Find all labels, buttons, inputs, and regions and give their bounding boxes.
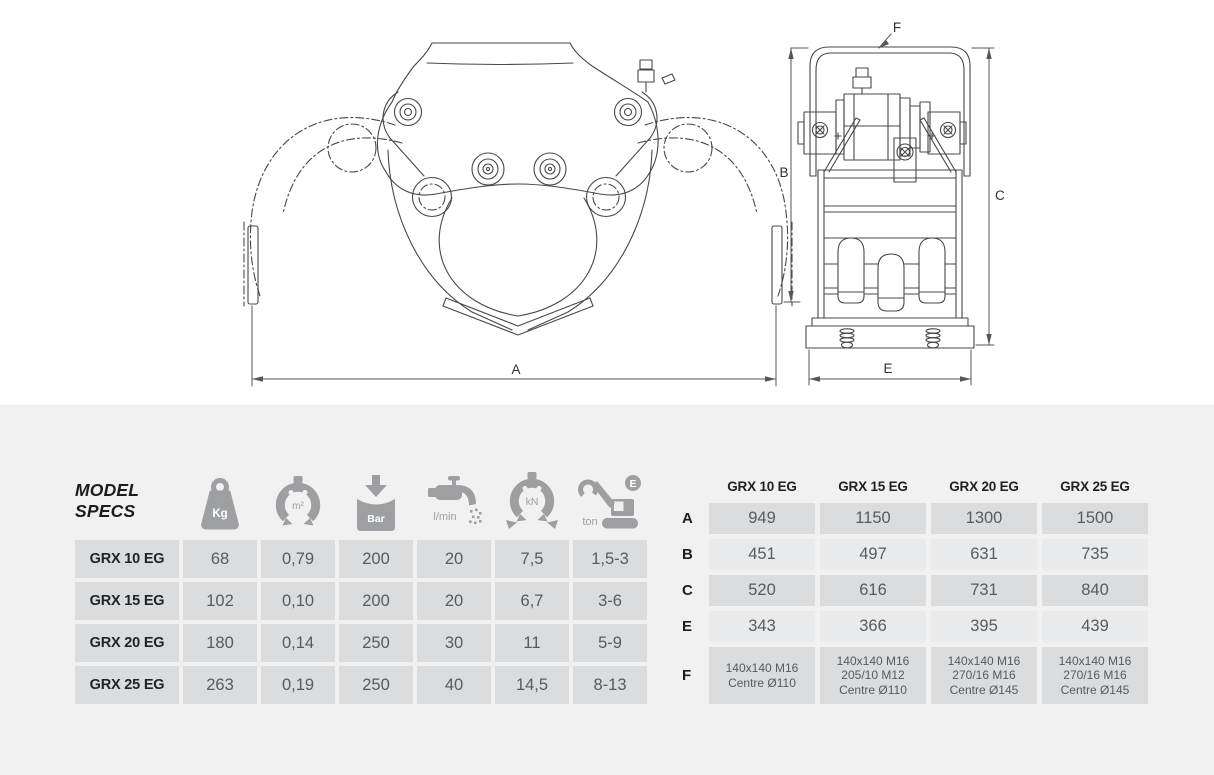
dimension-row-label: B <box>682 539 704 570</box>
dimension-label-f: F <box>893 20 901 35</box>
column-header: GRX 15 EG <box>820 474 926 498</box>
spec-value: 102 <box>183 582 257 620</box>
dimension-value: 140x140 M16 270/16 M16 Centre Ø145 <box>1042 647 1148 704</box>
pressure-bar-icon: Bar <box>339 466 413 536</box>
title-line-1: MODEL <box>75 480 179 501</box>
spec-value: 250 <box>339 666 413 704</box>
dimension-value: 631 <box>931 539 1037 570</box>
grapple-area-icon: m² <box>261 466 335 536</box>
weight-kg-icon: Kg <box>183 466 257 536</box>
spec-value: 68 <box>183 540 257 578</box>
dimension-value: 140x140 M16 270/16 M16 Centre Ø145 <box>931 647 1037 704</box>
model-specs-title: MODEL SPECS <box>75 466 179 536</box>
dimension-value: 439 <box>1042 611 1148 642</box>
spec-value: 6,7 <box>495 582 569 620</box>
dimension-label-e: E <box>883 361 892 376</box>
base-springs <box>840 329 940 348</box>
dimension-value: 451 <box>709 539 815 570</box>
spec-value: 14,5 <box>495 666 569 704</box>
column-header: GRX 25 EG <box>1042 474 1148 498</box>
excavator-ton-icon: E ton <box>573 466 647 536</box>
svg-text:Bar: Bar <box>367 513 385 525</box>
spec-value: 7,5 <box>495 540 569 578</box>
dimension-label-c: C <box>995 188 1005 203</box>
spec-value: 20 <box>417 582 491 620</box>
dimension-value: 140x140 M16 205/10 M12 Centre Ø110 <box>820 647 926 704</box>
spec-value: 3-6 <box>573 582 647 620</box>
dimension-value: 616 <box>820 575 926 606</box>
dimension-value: 1150 <box>820 503 926 534</box>
model-specs-table: MODEL SPECS Kg m² Bar <box>75 466 647 704</box>
column-header: GRX 10 EG <box>709 474 815 498</box>
dimension-row-label: E <box>682 611 704 642</box>
pivot-circles <box>395 99 642 217</box>
spec-value: 200 <box>339 582 413 620</box>
column-header: GRX 20 EG <box>931 474 1037 498</box>
open-position-dashed <box>244 118 792 306</box>
spec-value: 30 <box>417 624 491 662</box>
dimension-value: 949 <box>709 503 815 534</box>
model-label: GRX 25 EG <box>75 666 179 704</box>
side-view-drawing <box>798 47 974 348</box>
dimension-value: 140x140 M16 Centre Ø110 <box>709 647 815 704</box>
closing-force-kn-icon: kN <box>495 466 569 536</box>
flow-lmin-icon: l/min <box>417 466 491 536</box>
spec-value: 8-13 <box>573 666 647 704</box>
svg-text:l/min: l/min <box>433 511 456 523</box>
dimension-label-a: A <box>511 362 520 377</box>
svg-text:kN: kN <box>526 496 539 508</box>
spec-value: 180 <box>183 624 257 662</box>
spec-value: 0,10 <box>261 582 335 620</box>
spec-value: 0,79 <box>261 540 335 578</box>
dimension-value: 1300 <box>931 503 1037 534</box>
dimension-lines <box>252 34 994 386</box>
dimension-value: 735 <box>1042 539 1148 570</box>
spec-value: 40 <box>417 666 491 704</box>
dimension-value: 343 <box>709 611 815 642</box>
dimension-row-label: C <box>682 575 704 606</box>
dimension-label-b: B <box>779 165 788 180</box>
spec-value: 0,14 <box>261 624 335 662</box>
corner-cell <box>682 474 704 498</box>
dimension-value: 840 <box>1042 575 1148 606</box>
dimension-value: 1500 <box>1042 503 1148 534</box>
svg-text:Kg: Kg <box>212 508 227 520</box>
technical-drawing: A B C E F <box>0 0 1214 410</box>
dimension-value: 366 <box>820 611 926 642</box>
dimension-value: 520 <box>709 575 815 606</box>
svg-text:E: E <box>629 478 636 490</box>
spec-value: 250 <box>339 624 413 662</box>
spec-value: 200 <box>339 540 413 578</box>
spec-value: 5-9 <box>573 624 647 662</box>
dimension-value: 497 <box>820 539 926 570</box>
dimensions-table: GRX 10 EG GRX 15 EG GRX 20 EG GRX 25 EG … <box>682 474 1148 704</box>
spec-value: 263 <box>183 666 257 704</box>
spec-value: 1,5-3 <box>573 540 647 578</box>
model-label: GRX 10 EG <box>75 540 179 578</box>
dimension-value: 731 <box>931 575 1037 606</box>
spec-value: 20 <box>417 540 491 578</box>
title-line-2: SPECS <box>75 501 179 522</box>
model-label: GRX 15 EG <box>75 582 179 620</box>
dimension-row-label: A <box>682 503 704 534</box>
dimension-row-label: F <box>682 647 704 704</box>
svg-text:ton: ton <box>582 516 597 528</box>
page: { "drawing": { "labels": { "A": "A", "B"… <box>0 0 1214 775</box>
front-view-drawing <box>244 43 792 335</box>
svg-text:m²: m² <box>292 501 304 512</box>
spec-value: 11 <box>495 624 569 662</box>
dimension-arrowheads <box>252 40 992 382</box>
dimension-value: 395 <box>931 611 1037 642</box>
model-label: GRX 20 EG <box>75 624 179 662</box>
spec-value: 0,19 <box>261 666 335 704</box>
